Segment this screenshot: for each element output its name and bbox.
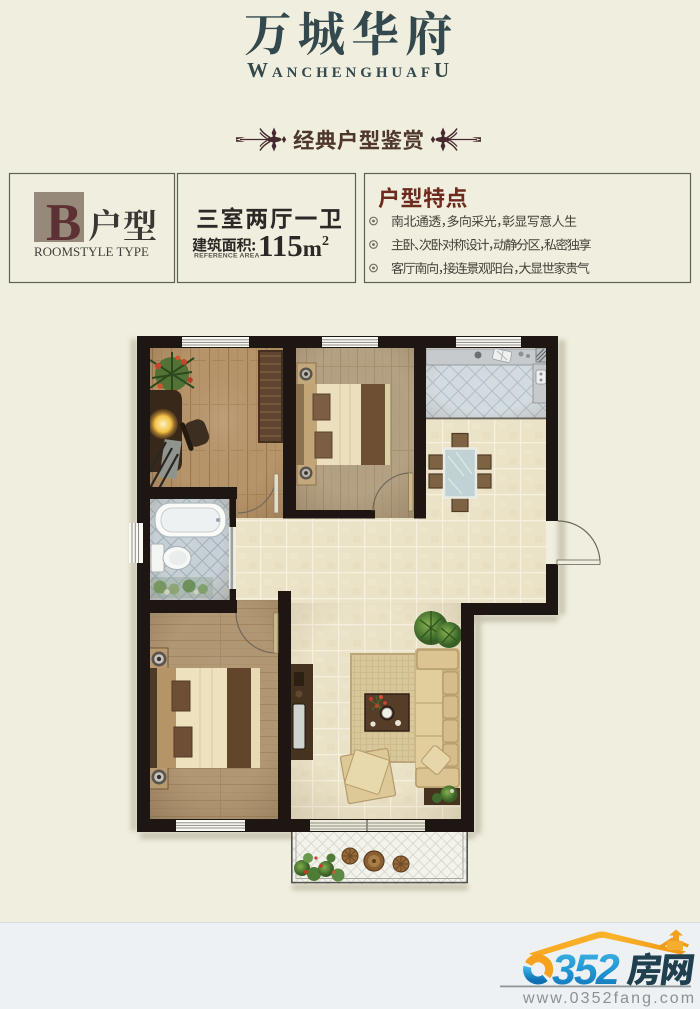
svg-text:ROOMSTYLE TYPE: ROOMSTYLE TYPE	[34, 244, 149, 259]
svg-text:www.0352fang.com: www.0352fang.com	[522, 990, 696, 1007]
svg-text:REFERENCE AREA: REFERENCE AREA	[194, 253, 260, 260]
